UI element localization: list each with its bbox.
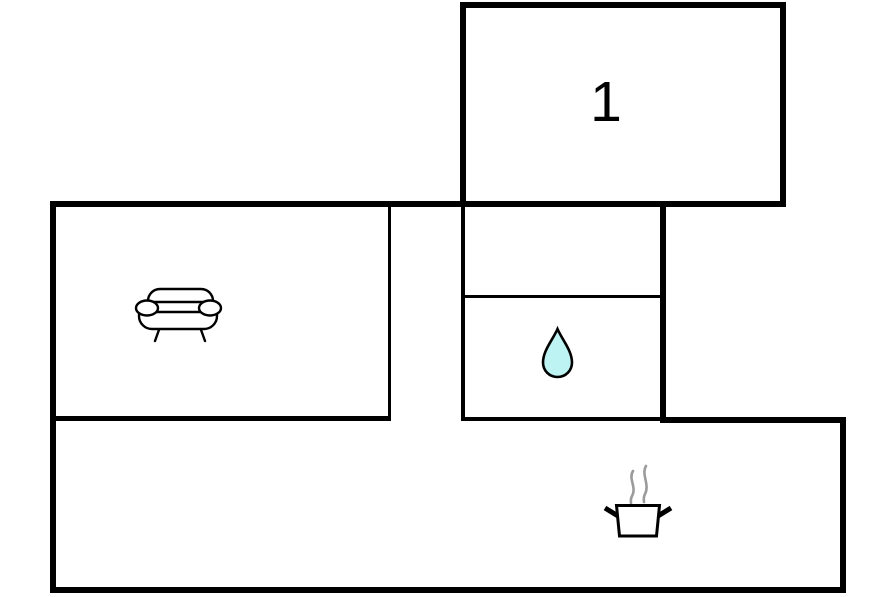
- wall-bath-bottom: [461, 417, 666, 421]
- pot-body: [617, 506, 660, 537]
- wall-living-bottom: [50, 416, 391, 421]
- wall-middle-left: [461, 204, 465, 421]
- wall-exterior-bottom: [50, 587, 846, 593]
- sofa-armrest-left: [136, 301, 158, 316]
- wall-exterior-top-left: [50, 201, 466, 207]
- wall-hall-bath-divider: [461, 295, 666, 298]
- floor-plan: 1: [0, 0, 896, 597]
- wall-living-right: [388, 204, 391, 419]
- wall-kitchen-right: [840, 417, 846, 593]
- wall-kitchen-top-right: [663, 417, 846, 423]
- plan-background: [0, 0, 896, 597]
- wall-exterior-left: [50, 201, 56, 593]
- room-1-label: 1: [590, 70, 622, 134]
- sofa-armrest-right: [199, 301, 221, 316]
- floor-plan-page: 1: [0, 0, 896, 597]
- wall-middle-right: [660, 204, 666, 423]
